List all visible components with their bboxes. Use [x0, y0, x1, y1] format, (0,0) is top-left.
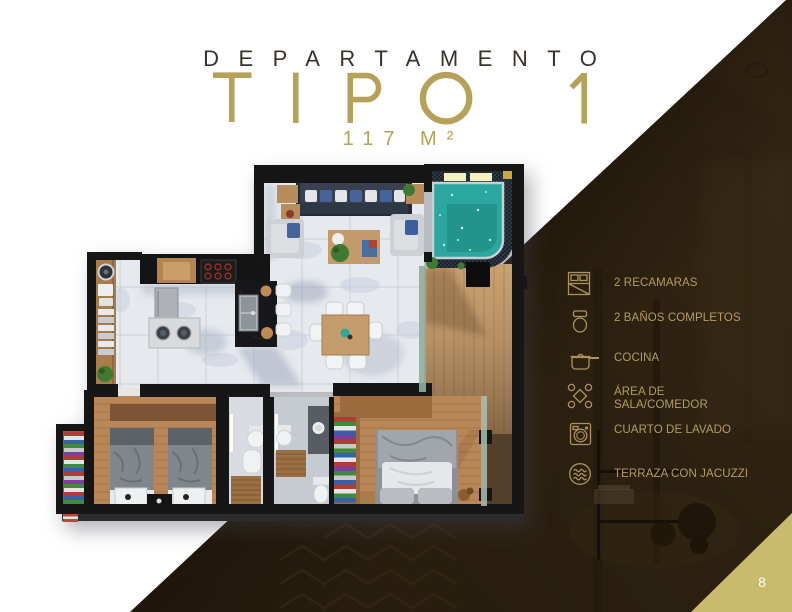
- svg-text:8: 8: [758, 574, 766, 590]
